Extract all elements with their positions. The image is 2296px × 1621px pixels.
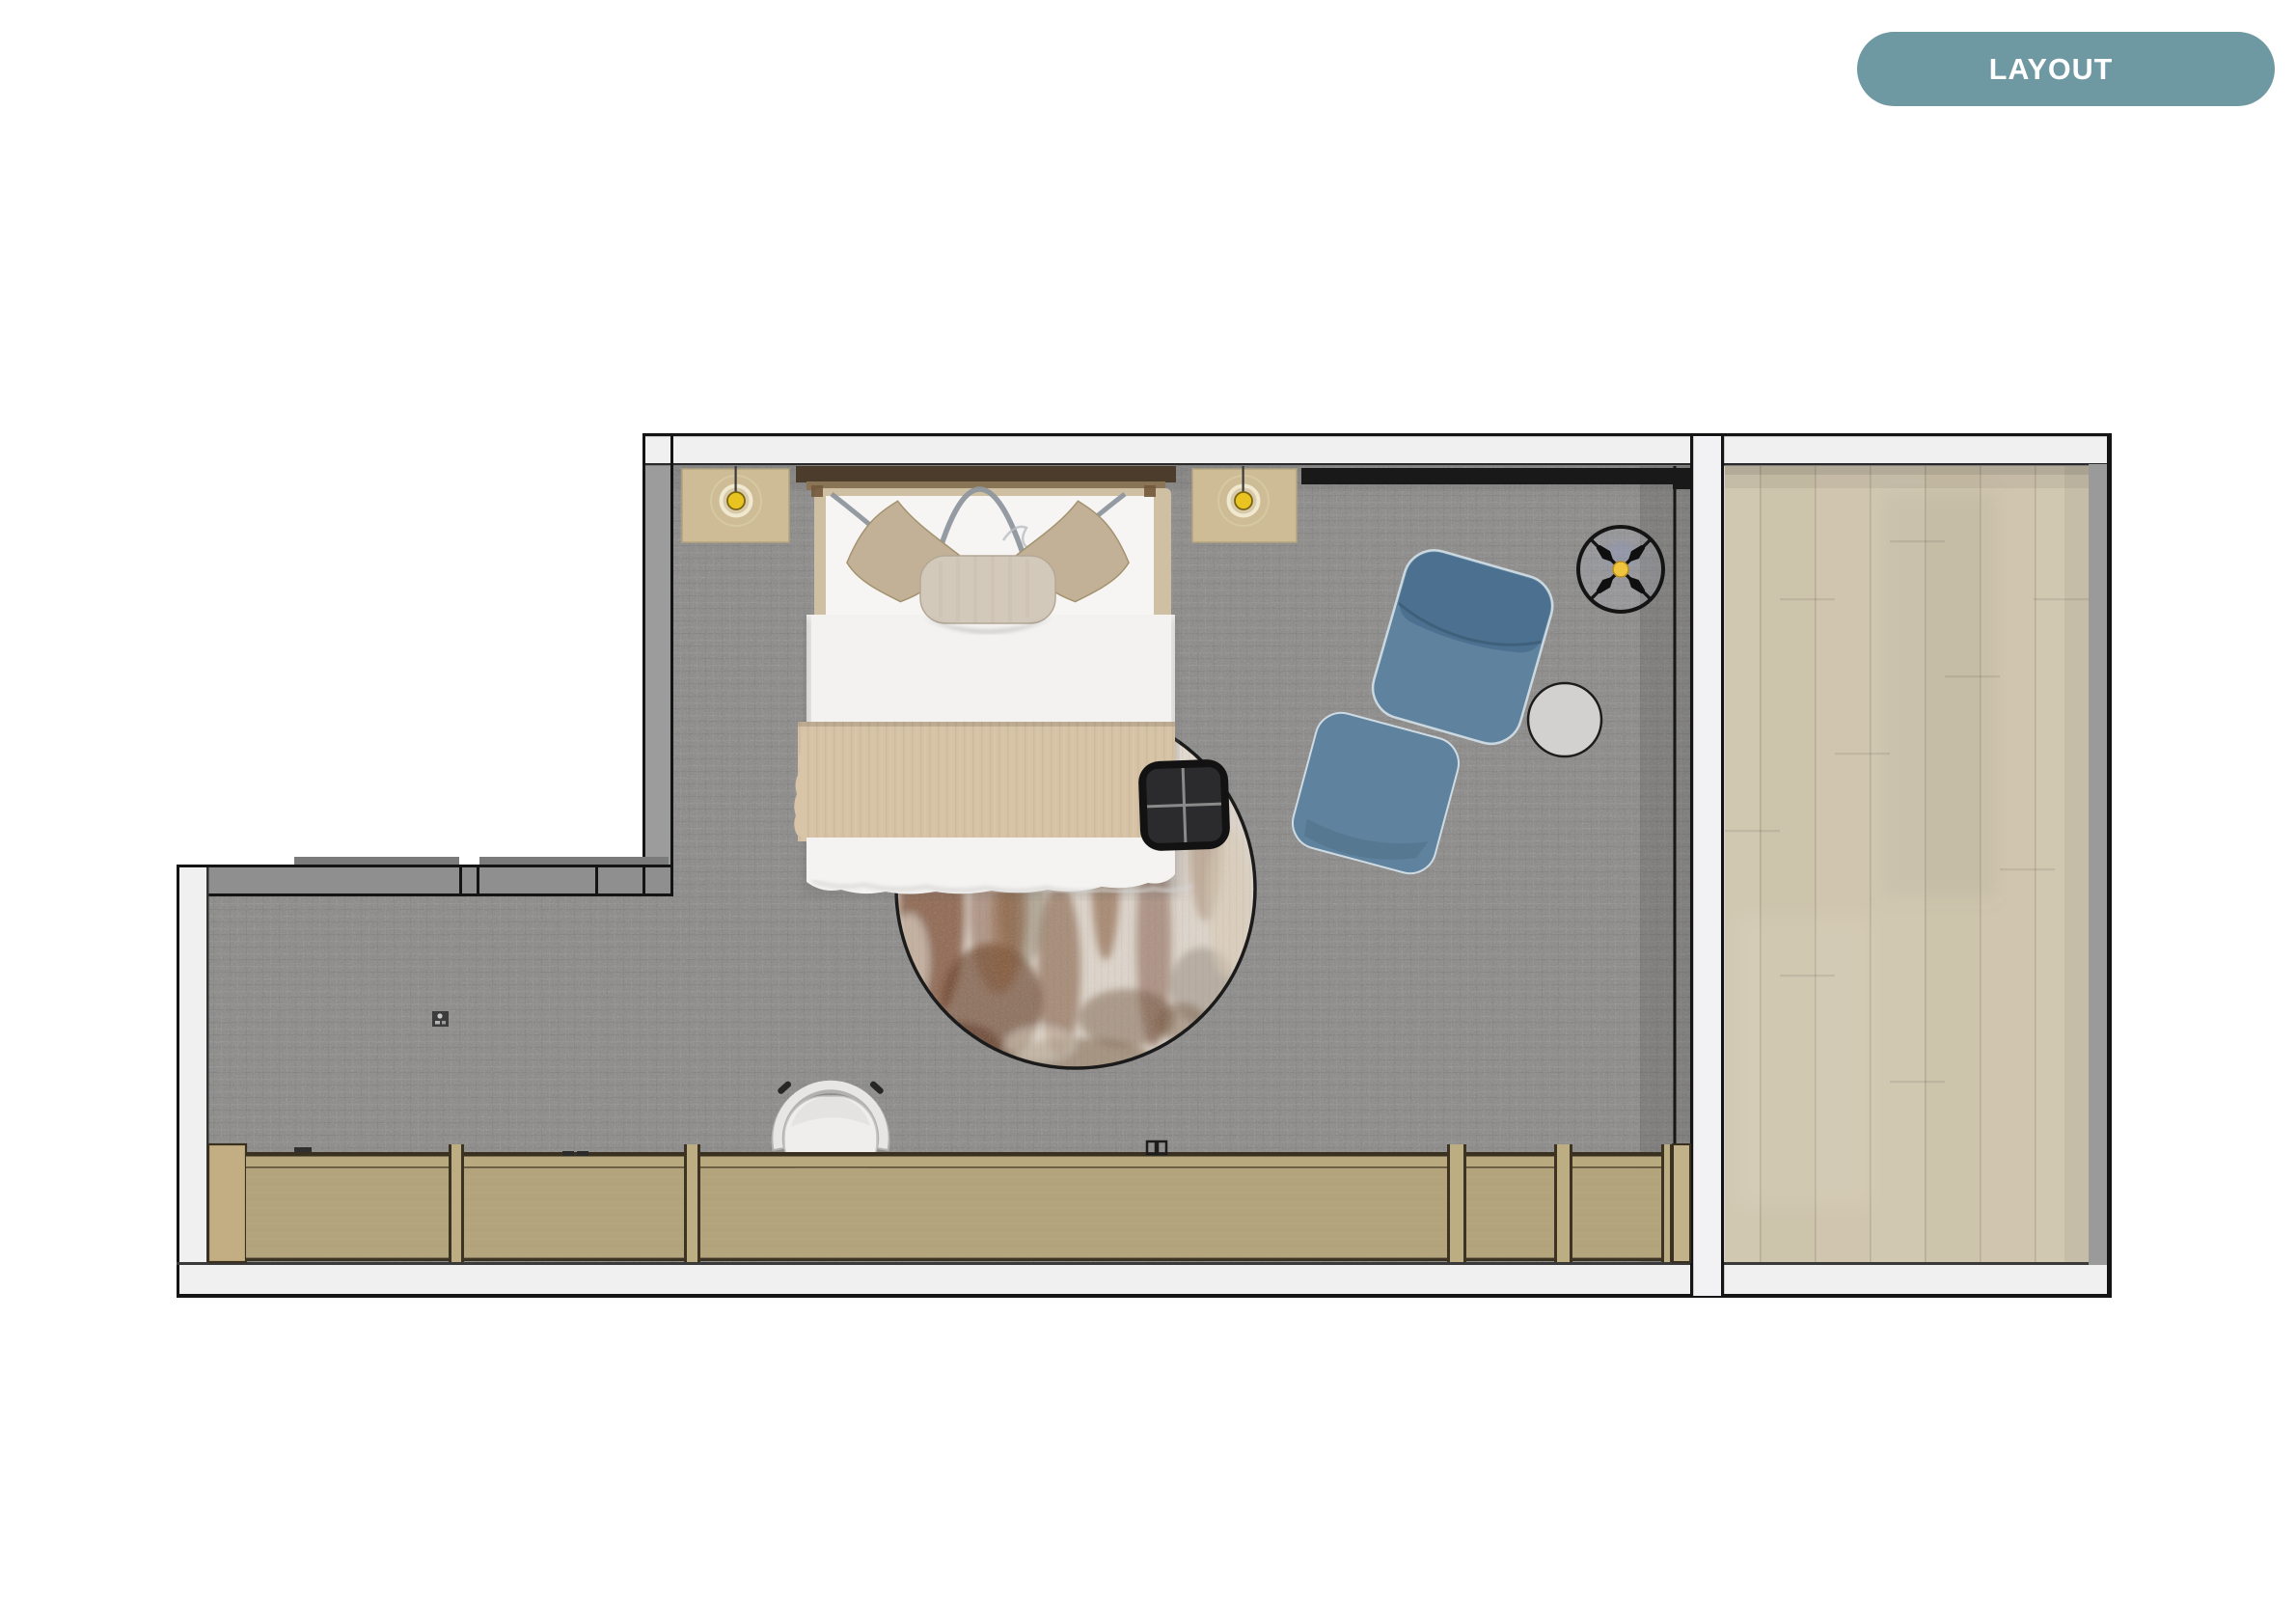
svg-text:LAYOUT: LAYOUT xyxy=(1989,53,2114,86)
